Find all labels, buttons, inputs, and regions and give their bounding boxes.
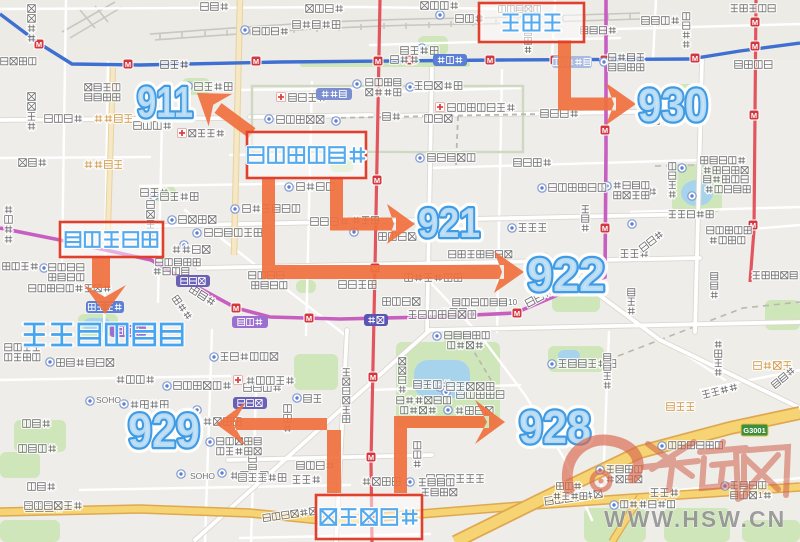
svg-text:SOHO: SOHO xyxy=(190,471,215,481)
svg-text:M: M xyxy=(125,60,131,69)
svg-text:M: M xyxy=(602,126,608,135)
svg-text:M: M xyxy=(374,176,380,185)
svg-text:M: M xyxy=(602,224,608,233)
svg-text:M: M xyxy=(306,314,312,323)
svg-text:M: M xyxy=(751,111,757,120)
svg-text:922: 922 xyxy=(527,248,605,301)
svg-text:M: M xyxy=(752,18,758,27)
svg-text:M: M xyxy=(36,40,42,49)
svg-text:M: M xyxy=(233,304,239,313)
svg-text:930: 930 xyxy=(638,79,708,131)
svg-text:M: M xyxy=(370,373,376,382)
svg-text:M: M xyxy=(514,309,520,318)
svg-text:M: M xyxy=(375,57,381,66)
svg-text:911: 911 xyxy=(137,78,193,127)
svg-text:921: 921 xyxy=(418,199,480,246)
svg-text:M: M xyxy=(368,453,374,462)
svg-text:M: M xyxy=(692,54,698,63)
svg-text:G3001: G3001 xyxy=(743,426,766,435)
svg-text:M: M xyxy=(752,42,758,51)
svg-text:929: 929 xyxy=(128,405,200,458)
svg-text:M: M xyxy=(487,56,493,65)
svg-text:SOHO: SOHO xyxy=(96,395,121,405)
svg-text:1: 1 xyxy=(758,491,763,500)
svg-text:10: 10 xyxy=(508,298,518,307)
svg-text:M: M xyxy=(253,57,259,66)
svg-text:WWW.HSW.CN: WWW.HSW.CN xyxy=(604,506,786,532)
